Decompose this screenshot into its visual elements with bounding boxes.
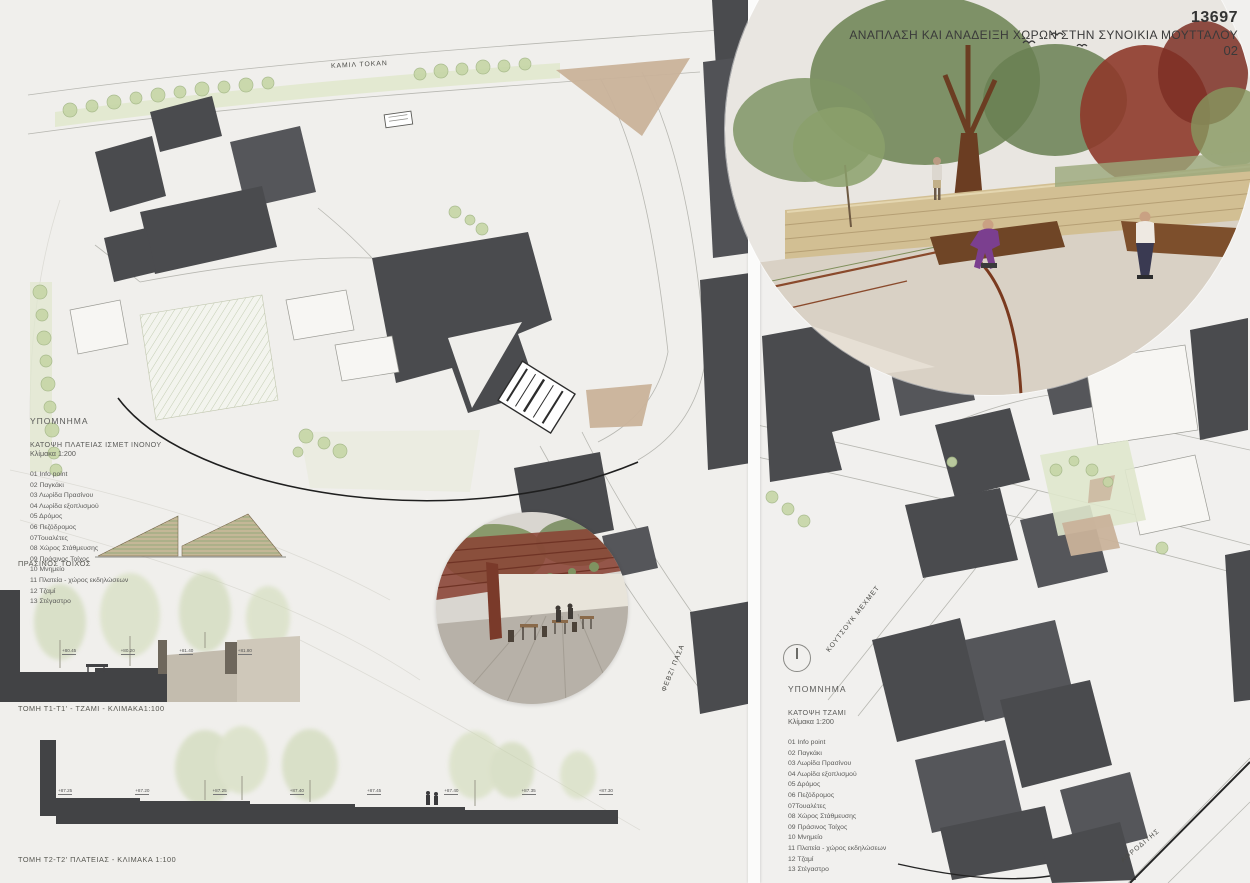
- legend-item: 07Τουαλέτες: [30, 534, 230, 545]
- legend-item: 01 Info point: [30, 470, 230, 481]
- legend-items: 01 Info point02 Παγκάκι03 Λωρίδα Πρασίνο…: [30, 470, 230, 608]
- green-wall-label: ΠΡΑΣΙΝΟΣ ΤΟΙΧΟΣ: [18, 559, 91, 568]
- north-arrow-icon: [783, 644, 811, 672]
- legend-heading: ΥΠΟΜΝΗΜΑ: [30, 416, 230, 426]
- elevation-tag: +87.25: [58, 788, 72, 795]
- elevation-tag: +80.45: [62, 648, 76, 655]
- elevation-tag: +87.40: [290, 788, 304, 795]
- legend-heading: ΥΠΟΜΝΗΜΑ: [788, 684, 988, 694]
- elevation-tag: +87.45: [367, 788, 381, 795]
- project-number: 13697: [758, 8, 1238, 28]
- legend-item: 07Τουαλέτες: [788, 802, 988, 813]
- legend-item: 03 Λωρίδα Πρασίνου: [788, 759, 988, 770]
- section-t2-label: ΤΟΜΗ Τ2-Τ2' ΠΛΑΤΕΙΑΣ - ΚΛΙΜΑΚΑ 1:100: [18, 855, 176, 864]
- title-block: 13697 ΑΝΑΠΛΑΣΗ ΚΑΙ ΑΝΑΔΕΙΞΗ ΧΩΡΩΝ ΣΤΗΝ Σ…: [758, 8, 1238, 59]
- legend-item: 03 Λωρίδα Πρασίνου: [30, 491, 230, 502]
- legend-item: 09 Πράσινος Τοίχος: [788, 823, 988, 834]
- legend-item: 11 Πλατεία - χώρος εκδηλώσεων: [30, 576, 230, 587]
- legend-items: 01 Info point02 Παγκάκι03 Λωρίδα Πρασίνο…: [788, 738, 988, 876]
- elevation-tag: +87.20: [135, 788, 149, 795]
- t1-elevation-tags: +80.45+80.20+81.40+81.80: [62, 648, 252, 655]
- section-t1-label: ΤΟΜΗ Τ1-Τ1' - ΤΖΑΜΙ - ΚΛΙΜΑΚΑ1:100: [18, 704, 165, 713]
- legend-item: 02 Παγκάκι: [788, 749, 988, 760]
- legend-subtitle: ΚΑΤΟΨΗ ΤΖΑΜΙ: [788, 708, 988, 717]
- legend-subtitle: ΚΑΤΟΨΗ ΠΛΑΤΕΙΑΣ ΙΣΜΕΤ ΙΝΟΝΟΥ: [30, 440, 230, 449]
- legend-item: 05 Δρόμος: [30, 512, 230, 523]
- elevation-tag: +87.30: [599, 788, 613, 795]
- panel-number: 02: [758, 43, 1238, 59]
- legend-scale: Κλίμακα 1:200: [30, 449, 230, 458]
- legend-item: 06 Πεζόδρομος: [30, 523, 230, 534]
- elevation-tag: +87.35: [522, 788, 536, 795]
- render-pergola-circle: [436, 512, 628, 704]
- legend-left: ΥΠΟΜΝΗΜΑ ΚΑΤΟΨΗ ΠΛΑΤΕΙΑΣ ΙΣΜΕΤ ΙΝΟΝΟΥ Κλ…: [30, 416, 230, 608]
- legend-right: ΥΠΟΜΝΗΜΑ ΚΑΤΟΨΗ ΤΖΑΜΙ Κλίμακα 1:200 01 I…: [788, 684, 988, 876]
- legend-scale: Κλίμακα 1:200: [788, 717, 988, 726]
- legend-item: 13 Στέγαστρο: [30, 597, 230, 608]
- legend-item: 04 Λωρίδα εξοπλισμού: [30, 502, 230, 513]
- elevation-tag: +81.80: [238, 648, 252, 655]
- presentation-board: 13697 ΑΝΑΠΛΑΣΗ ΚΑΙ ΑΝΑΔΕΙΞΗ ΧΩΡΩΝ ΣΤΗΝ Σ…: [0, 0, 1250, 883]
- legend-item: 10 Μνημείο: [788, 833, 988, 844]
- elevation-tag: +87.25: [213, 788, 227, 795]
- elevation-tag: +80.20: [121, 648, 135, 655]
- legend-item: 11 Πλατεία - χώρος εκδηλώσεων: [788, 844, 988, 855]
- elevation-tag: +87.40: [444, 788, 458, 795]
- elevation-tag: +81.40: [179, 648, 193, 655]
- legend-item: 05 Δρόμος: [788, 780, 988, 791]
- legend-item: 04 Λωρίδα εξοπλισμού: [788, 770, 988, 781]
- legend-item: 13 Στέγαστρο: [788, 865, 988, 876]
- t2-elevation-tags: +87.25+87.20+87.25+87.40+87.45+87.40+87.…: [58, 788, 613, 795]
- legend-item: 08 Χώρος Στάθμευσης: [30, 544, 230, 555]
- legend-item: 12 Τζαμί: [788, 855, 988, 866]
- legend-item: 06 Πεζόδρομος: [788, 791, 988, 802]
- project-title: ΑΝΑΠΛΑΣΗ ΚΑΙ ΑΝΑΔΕΙΞΗ ΧΩΡΩΝ ΣΤΗΝ ΣΥΝΟΙΚΙ…: [758, 28, 1238, 43]
- legend-item: 02 Παγκάκι: [30, 481, 230, 492]
- legend-item: 01 Info point: [788, 738, 988, 749]
- legend-item: 08 Χώρος Στάθμευσης: [788, 812, 988, 823]
- legend-item: 12 Τζαμί: [30, 587, 230, 598]
